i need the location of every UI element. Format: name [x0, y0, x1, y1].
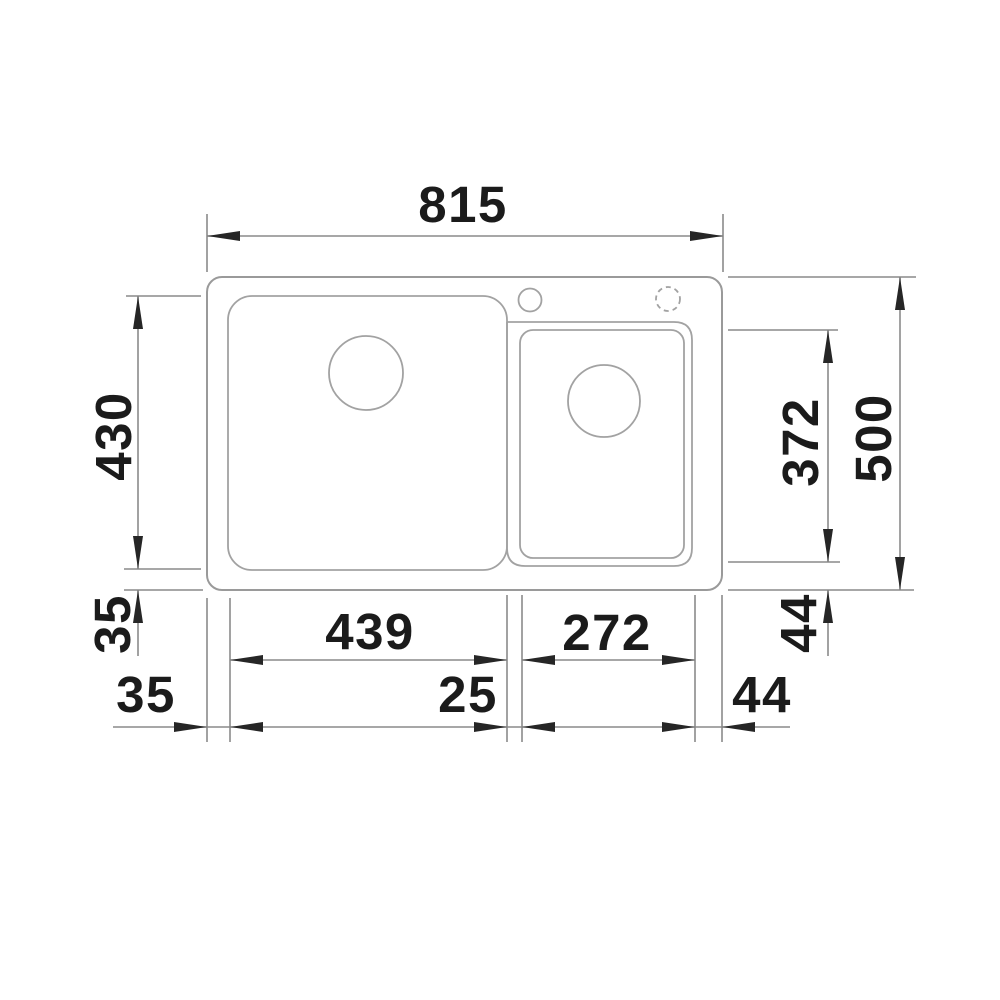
- dim-label-second-bowl-bottom-gap: 44: [770, 593, 827, 653]
- dim-label-main-bowl-left-gap: 35: [116, 666, 176, 723]
- dim-main-bowl-depth: 430: [85, 296, 143, 569]
- dim-label-main-bowl-depth: 430: [85, 391, 142, 481]
- second-bowl-rim: [507, 322, 692, 566]
- dim-label-second-bowl-right-gap: 44: [732, 666, 792, 723]
- dim-label-overall-width: 815: [418, 176, 508, 233]
- dim-second-bowl-bottom-gap: 44: [770, 590, 833, 656]
- dim-overall-width: 815: [207, 176, 723, 241]
- tap-hole-icon: [519, 289, 542, 312]
- dim-main-bowl-width: 439: [230, 603, 507, 665]
- dim-second-bowl-depth: 372: [772, 330, 833, 562]
- dim-label-second-bowl-depth: 372: [772, 397, 829, 487]
- sink-outer-rim: [207, 277, 722, 590]
- dim-main-bowl-bottom-gap: 35: [84, 590, 143, 656]
- dim-overall-depth: 500: [845, 277, 905, 590]
- main-bowl: [228, 296, 507, 570]
- dim-label-main-bowl-width: 439: [325, 603, 415, 660]
- sink-technical-drawing: 815 430 35 372 44 500 439: [0, 0, 1000, 1000]
- sink-outline-group: [207, 277, 722, 590]
- dim-edge-gaps-row: 35 25 44: [113, 666, 792, 732]
- dim-second-bowl-width: 272: [522, 604, 695, 665]
- main-bowl-drain-icon: [329, 336, 403, 410]
- dim-label-main-bowl-bottom-gap: 35: [84, 594, 141, 654]
- optional-tap-hole-icon: [656, 287, 680, 311]
- drawing-canvas: 815 430 35 372 44 500 439: [0, 0, 1000, 1000]
- dim-label-overall-depth: 500: [845, 393, 902, 483]
- dim-label-second-bowl-width: 272: [562, 604, 652, 661]
- dim-label-between-bowls-gap: 25: [438, 666, 498, 723]
- second-bowl-drain-icon: [568, 365, 640, 437]
